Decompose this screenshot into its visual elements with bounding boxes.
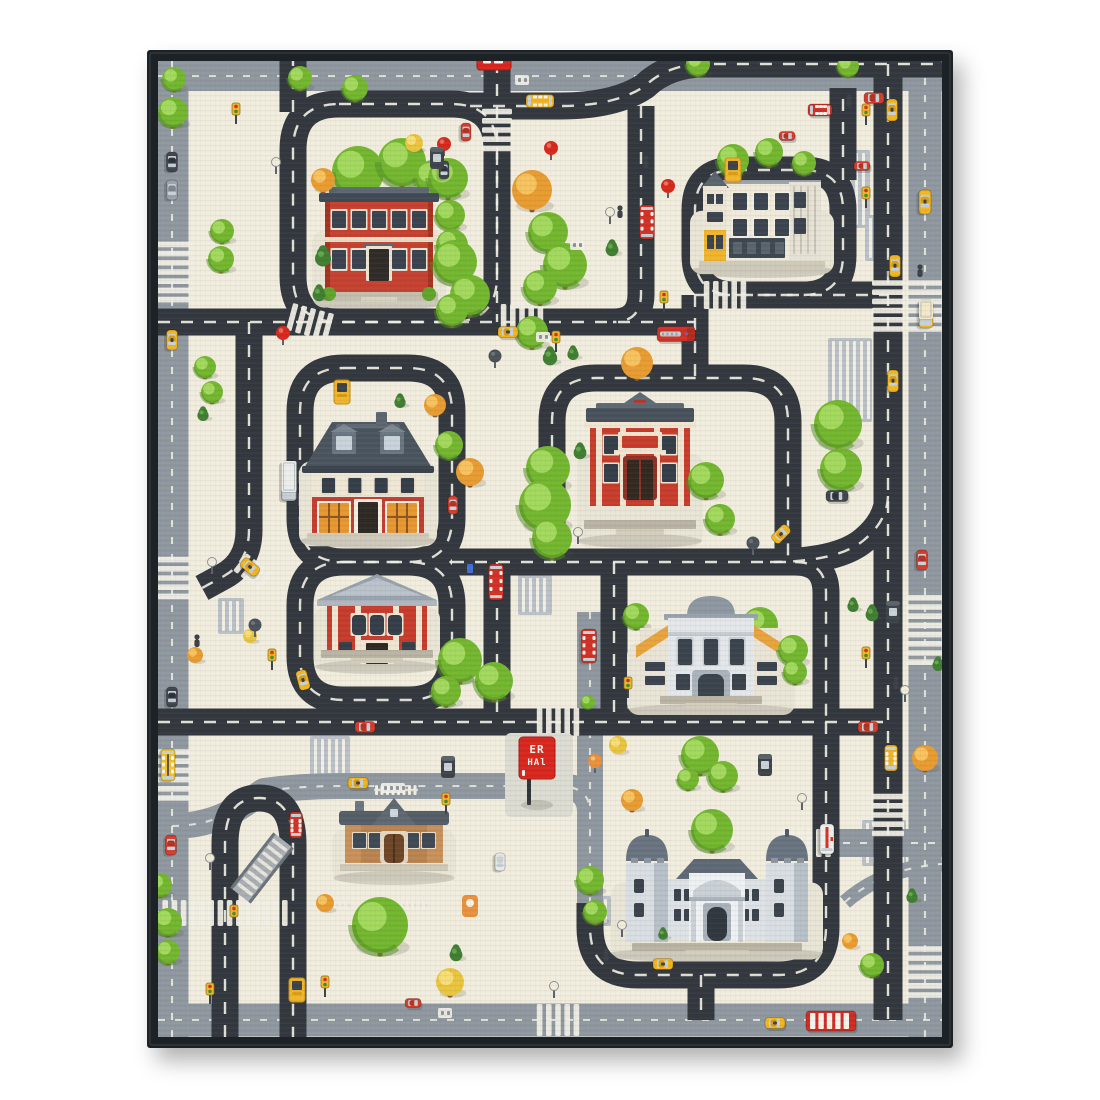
framed-canvas: ERHAl (147, 50, 953, 1048)
print-content: ERHAl (147, 50, 953, 1048)
play-mat-print: ERHAl (0, 0, 1100, 1100)
play-mat-canvas-photo: ERHAl (0, 0, 1100, 1100)
canvas-texture (147, 50, 953, 1048)
